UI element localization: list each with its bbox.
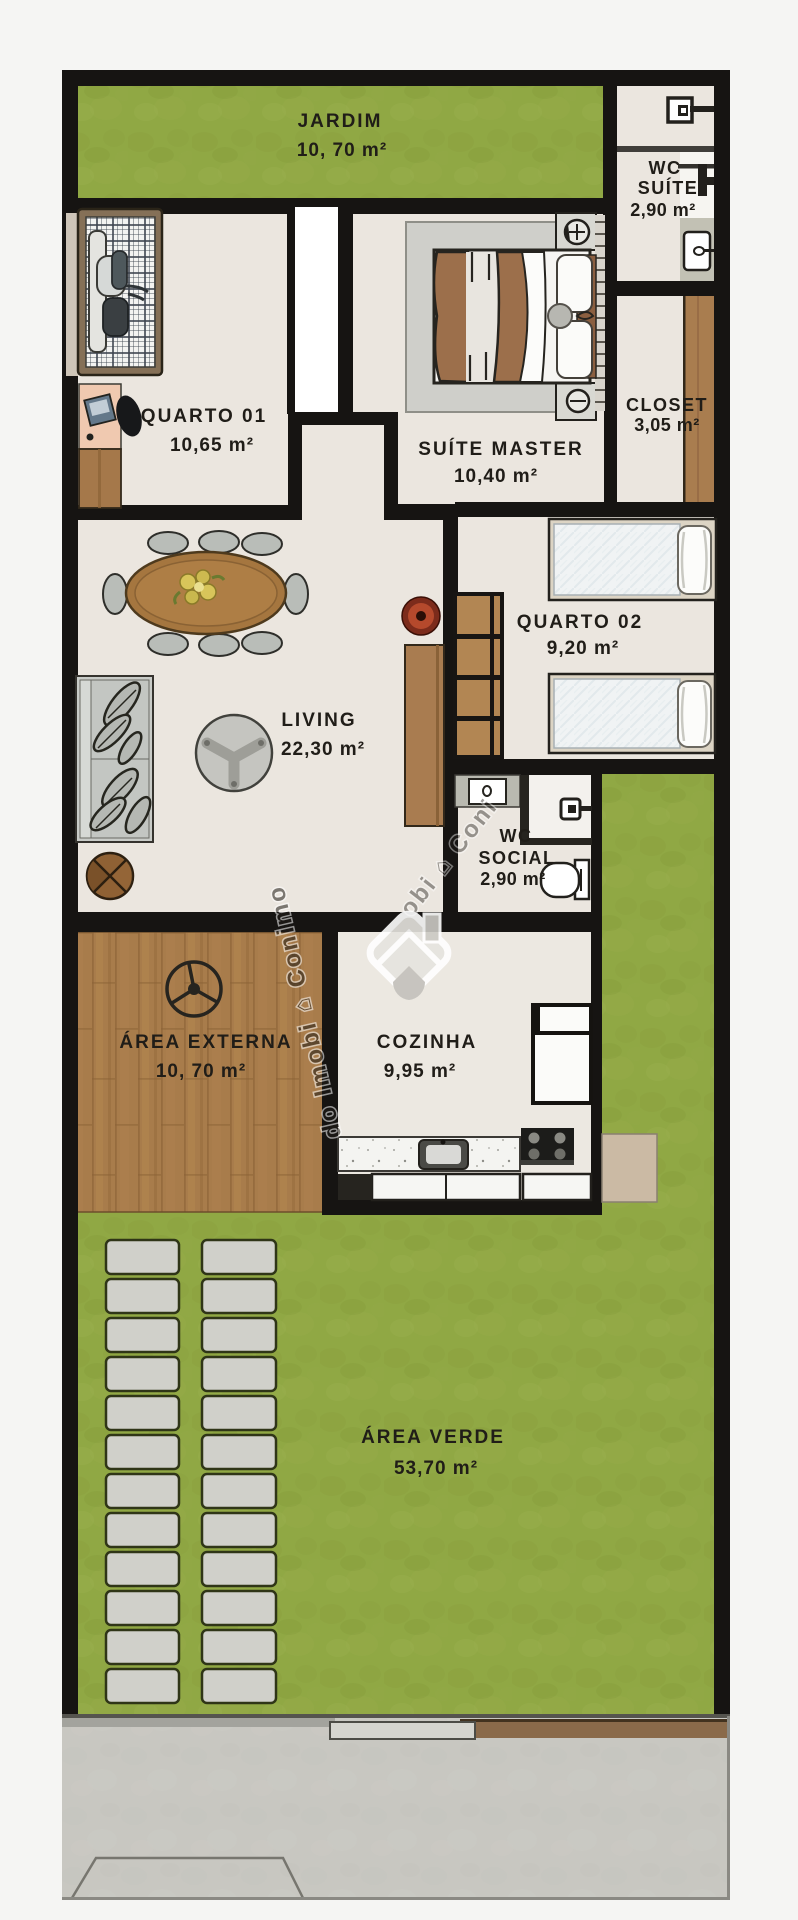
svg-text:SOCIAL: SOCIAL <box>478 848 555 868</box>
svg-text:COZINHA: COZINHA <box>377 1032 478 1053</box>
svg-text:ÁREA VERDE: ÁREA VERDE <box>361 1426 505 1448</box>
svg-text:53,70 m²: 53,70 m² <box>394 1458 478 1479</box>
svg-text:10,40 m²: 10,40 m² <box>454 466 538 487</box>
svg-text:22,30 m²: 22,30 m² <box>281 739 365 760</box>
svg-text:QUARTO 02: QUARTO 02 <box>517 612 643 633</box>
svg-text:WC: WC <box>500 826 533 846</box>
svg-text:WC: WC <box>649 158 682 178</box>
svg-text:2,90 m²: 2,90 m² <box>480 869 546 889</box>
svg-text:10,65 m²: 10,65 m² <box>170 435 254 456</box>
svg-text:JARDIM: JARDIM <box>298 111 383 132</box>
svg-text:10, 70 m²: 10, 70 m² <box>297 140 387 161</box>
svg-text:CLOSET: CLOSET <box>626 395 708 415</box>
svg-text:LIVING: LIVING <box>281 710 356 731</box>
svg-text:10, 70 m²: 10, 70 m² <box>156 1061 246 1082</box>
svg-text:SUÍTE: SUÍTE <box>638 177 699 198</box>
svg-text:3,05 m²: 3,05 m² <box>634 415 700 435</box>
svg-text:ÁREA EXTERNA: ÁREA EXTERNA <box>119 1031 292 1053</box>
svg-text:QUARTO 01: QUARTO 01 <box>141 406 267 427</box>
svg-text:9,20 m²: 9,20 m² <box>547 638 619 659</box>
svg-text:9,95 m²: 9,95 m² <box>384 1061 456 1082</box>
svg-text:2,90 m²: 2,90 m² <box>630 200 696 220</box>
svg-text:SUÍTE MASTER: SUÍTE MASTER <box>418 438 583 460</box>
